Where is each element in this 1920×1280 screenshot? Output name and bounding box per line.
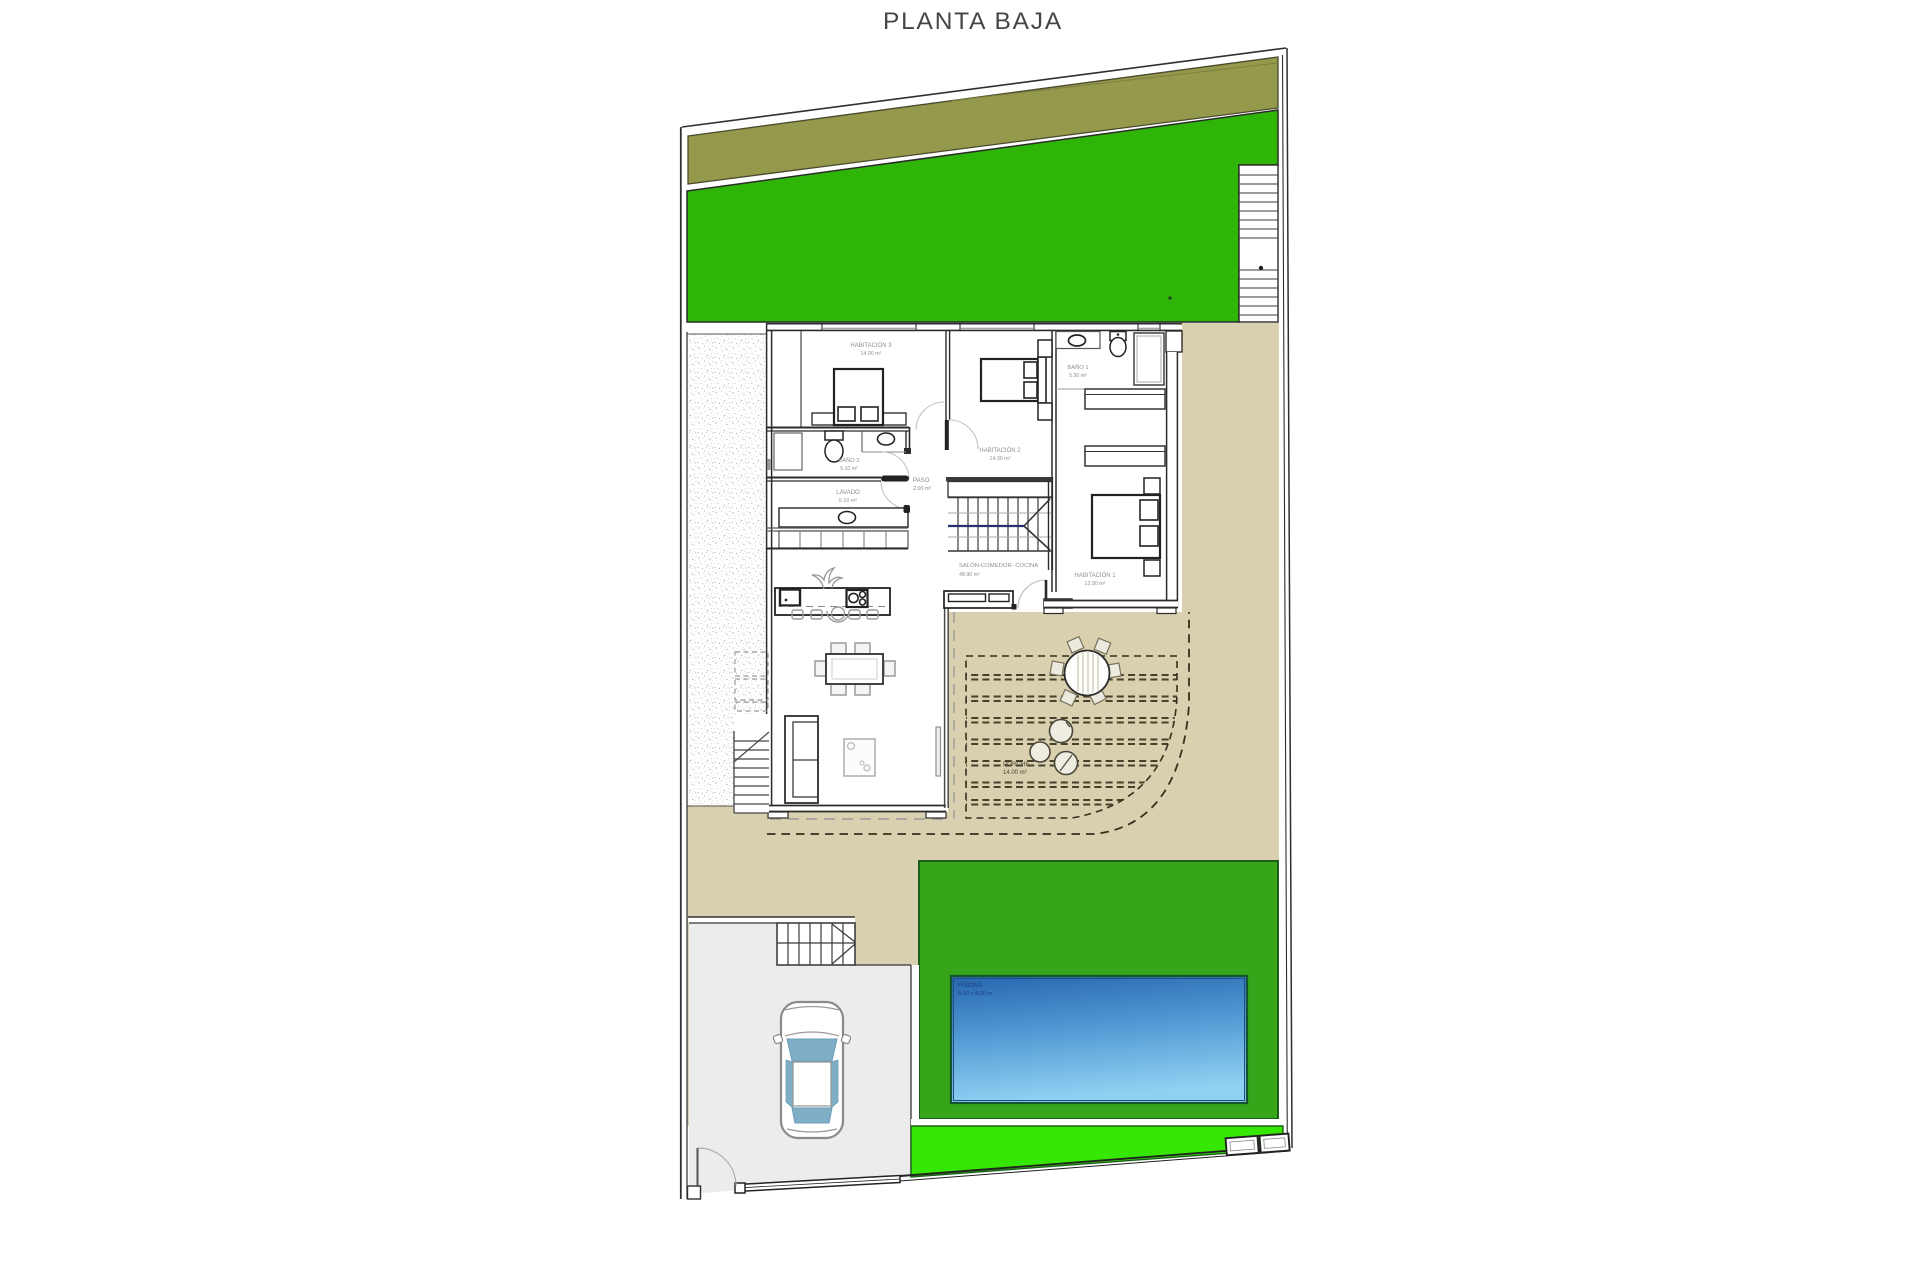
svg-text:14.00 m²: 14.00 m² bbox=[861, 351, 882, 357]
svg-text:HABITACIÓN 3: HABITACIÓN 3 bbox=[850, 342, 892, 349]
svg-text:PISCINA: PISCINA bbox=[958, 983, 982, 989]
svg-text:14.00 m²: 14.00 m² bbox=[1003, 770, 1027, 776]
svg-text:6.00 x 4.00 m: 6.00 x 4.00 m bbox=[958, 991, 992, 997]
svg-text:2.00 m²: 2.00 m² bbox=[913, 486, 931, 492]
svg-text:PORCHE: PORCHE bbox=[1003, 761, 1029, 768]
svg-text:PLANTA BAJA: PLANTA BAJA bbox=[883, 8, 1063, 35]
svg-text:PASO: PASO bbox=[913, 477, 930, 484]
svg-text:5.30 m²: 5.30 m² bbox=[1069, 373, 1087, 379]
svg-text:LAVADO: LAVADO bbox=[836, 490, 860, 496]
svg-text:HABITACIÓN 2: HABITACIÓN 2 bbox=[979, 447, 1021, 454]
svg-text:5.10 m²: 5.10 m² bbox=[840, 466, 858, 472]
svg-text:SALÓN-COMEDOR- COCINA: SALÓN-COMEDOR- COCINA bbox=[959, 562, 1038, 569]
svg-text:13.90 m²: 13.90 m² bbox=[1085, 581, 1106, 587]
svg-text:BAÑO 1: BAÑO 1 bbox=[1067, 364, 1088, 371]
svg-text:5.10 m²: 5.10 m² bbox=[839, 498, 857, 504]
svg-text:BAÑO 2: BAÑO 2 bbox=[838, 457, 859, 464]
svg-text:14.30 m²: 14.30 m² bbox=[990, 456, 1011, 462]
svg-text:HABITACIÓN 1: HABITACIÓN 1 bbox=[1074, 572, 1116, 579]
svg-text:48.90 m²: 48.90 m² bbox=[959, 572, 980, 578]
